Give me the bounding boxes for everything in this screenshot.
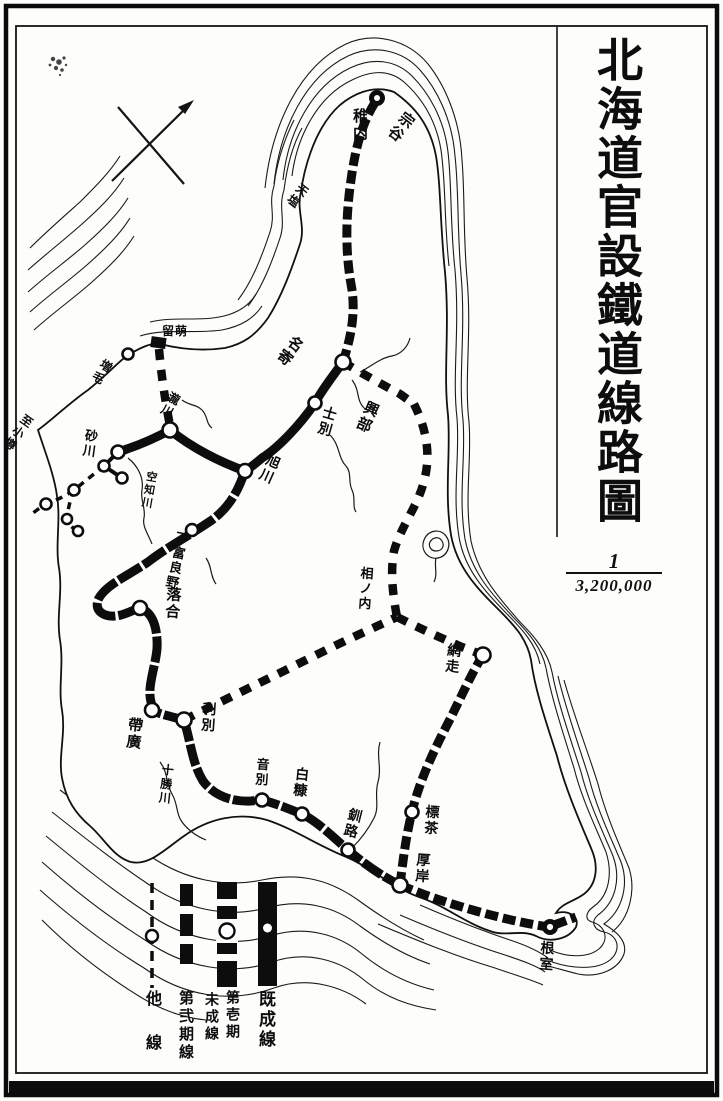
map-label-onbetsu: 音別 xyxy=(254,757,269,788)
map-label-obihiro: 帶廣 xyxy=(123,716,141,751)
map-label-takikawa: 瀧川 xyxy=(158,390,182,420)
map-label-abashiri: 網走 xyxy=(443,642,460,675)
map-label-rumoi: 留萌 xyxy=(162,325,188,337)
map-label-shibetsu: 士別 xyxy=(314,404,336,439)
map-label-tokachigawa: 十勝川 xyxy=(158,763,174,806)
map-label-asahikawa: 旭川 xyxy=(255,451,281,486)
legend-label-tasen: 他線 xyxy=(143,990,159,1078)
map-label-kushiro: 釧路 xyxy=(340,806,361,840)
map-label-nayoro: 名寄 xyxy=(272,332,305,368)
map-label-wakkanai: 稚内 xyxy=(351,108,366,142)
map-label-teshio: 天塩 xyxy=(284,181,311,210)
map-label-otaru-link: 至小樽 xyxy=(0,412,34,453)
map-label-toshibetsu: 利別 xyxy=(199,701,215,734)
legend-label-kisei: 既成線 xyxy=(257,990,274,1050)
map-label-mashike: 増毛 xyxy=(89,357,114,387)
map-label-shiranuka: 白糠 xyxy=(291,766,308,799)
scanned-railway-map-page: 北海道官設鐵道線路圖 1 3,200,000 稚内宗谷天塩名寄興部士別旭川留萌増… xyxy=(0,0,723,1101)
map-label-sorachigawa: 空知川 xyxy=(139,470,157,510)
map-label-okoppe: 興部 xyxy=(352,398,380,435)
map-label-nemuro: 根室 xyxy=(537,940,553,973)
map-label-sunagawa: 砂川 xyxy=(81,428,98,460)
map-label-akkeshi: 厚岸 xyxy=(413,852,429,885)
legend-label-dai1ki-col1: 第壱期 xyxy=(224,990,238,1041)
map-label-ainonai: 相ノ内 xyxy=(357,566,373,612)
legend-label-dai1ki-col2: 未成線 xyxy=(203,992,217,1043)
map-label-shimofurano: 下富良野 xyxy=(164,530,189,591)
map-label-shibecha: 標茶 xyxy=(422,804,438,837)
map-labels-layer: 稚内宗谷天塩名寄興部士別旭川留萌増毛瀧川砂川至小樽空知川下富良野落合帶廣利別十勝… xyxy=(0,0,723,1101)
map-label-soya: 宗谷 xyxy=(383,108,416,144)
legend-label-dai2ki: 第弐期線 xyxy=(177,990,192,1062)
map-label-ochiai: 落合 xyxy=(163,586,180,621)
